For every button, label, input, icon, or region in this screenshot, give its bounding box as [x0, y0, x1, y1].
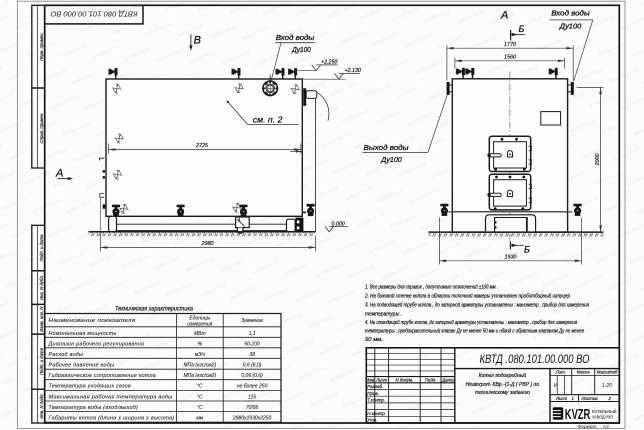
svg-text:Листов: Листов — [581, 396, 599, 401]
svg-text:Дата: Дата — [441, 377, 454, 382]
svg-text:Масштаб: Масштаб — [597, 370, 618, 375]
svg-text:2980х1930х2250: 2980х1930х2250 — [232, 415, 272, 421]
svg-text:KVZR: KVZR — [565, 407, 591, 423]
svg-text:А: А — [500, 10, 508, 22]
svg-text:0.000: 0.000 — [332, 221, 345, 227]
svg-text:+2.130: +2.130 — [345, 68, 361, 74]
svg-text:В: В — [194, 35, 201, 47]
svg-text:2. На боковой стенке котла в: 2. На боковой стенке котла в области топ… — [364, 293, 570, 300]
svg-text:Heaterport- КВр -(1-Д ( РВР ): Heaterport- КВр -(1-Д ( РВР ) по — [466, 382, 540, 388]
svg-text:температуры , предохранительны: температуры , предохранительный клапан Д… — [365, 328, 584, 335]
svg-text:Габариты котла (длина х ширина: Габариты котла (длина х ширина х высота) — [49, 415, 175, 421]
svg-text:Т.контр.: Т.контр. — [367, 398, 385, 403]
svg-text:2: 2 — [608, 396, 612, 401]
svg-text:Подп. и дата: Подп. и дата — [39, 348, 44, 376]
svg-text:Ду100: Ду100 — [380, 157, 402, 164]
svg-text:Формат: Формат — [578, 424, 597, 430]
svg-text:МПа (кгс/см2): МПа (кгс/см2) — [183, 373, 216, 379]
svg-text:N докум.: N докум. — [396, 377, 414, 382]
svg-text:И: И — [554, 383, 558, 389]
svg-text:Расход воды: Расход воды — [49, 352, 84, 358]
svg-text:А3: А3 — [602, 424, 609, 430]
svg-text:А: А — [55, 167, 63, 179]
svg-text:Подп.: Подп. — [425, 377, 437, 382]
svg-text:Номинальная мощность: Номинальная мощность — [49, 331, 117, 337]
svg-text:Утв.: Утв. — [367, 417, 377, 422]
svg-text:см. п. 2: см. п. 2 — [253, 115, 283, 125]
svg-text:техническому заданию: техническому заданию — [475, 390, 530, 396]
svg-text:Вход воды: Вход воды — [276, 33, 315, 42]
svg-text:Лит.: Лит. — [555, 370, 566, 375]
svg-text:1. Все размеры для справок ,: 1. Все размеры для справок , допустимые … — [365, 284, 498, 291]
svg-text:м3/ч: м3/ч — [195, 352, 206, 358]
svg-text:МПа (кгс/см2): МПа (кгс/см2) — [183, 362, 216, 368]
svg-text:температуры .: температуры . — [365, 312, 402, 318]
svg-text:1770: 1770 — [504, 42, 516, 48]
svg-text:Температура воды (вход/выход): Температура воды (вход/выход) — [49, 405, 139, 411]
svg-text:не более 250: не более 250 — [237, 384, 268, 390]
svg-text:Справ. примен.: Справ. примен. — [39, 113, 44, 144]
svg-text:50 мм.: 50 мм. — [365, 337, 383, 343]
svg-text:Пров.: Пров. — [367, 391, 379, 396]
svg-text:50-100: 50-100 — [244, 341, 260, 347]
svg-text:3. На подводящей трубе котла: 3. На подводящей трубе котла , до запорн… — [365, 302, 589, 309]
svg-text:ЗАВОД РЭП: ЗАВОД РЭП — [592, 414, 613, 419]
svg-text:°С: °С — [197, 394, 203, 400]
svg-text:Взам. инв. N: Взам. инв. N — [39, 306, 44, 332]
svg-text:1930: 1930 — [505, 254, 517, 260]
svg-text:Вход воды: Вход воды — [551, 8, 590, 17]
svg-text:КВТД .080.101.00.000 ВО: КВТД .080.101.00.000 ВО — [480, 354, 590, 366]
svg-text:Котел водогрейный: Котел водогрейный — [479, 372, 527, 379]
svg-text:Н.контр.: Н.контр. — [367, 411, 386, 416]
svg-text:Изм.: Изм. — [366, 377, 375, 382]
svg-text:Значение: Значение — [241, 318, 263, 324]
svg-text:Максимальная рабочая температу: Максимальная рабочая температура воды — [49, 394, 173, 400]
svg-text:°С: °С — [197, 405, 203, 411]
svg-text:мм: мм — [196, 415, 203, 421]
svg-text:Подп. и дата: Подп. и дата — [39, 234, 44, 262]
svg-text:2725: 2725 — [195, 143, 209, 149]
svg-text:Масса: Масса — [577, 370, 591, 375]
svg-text:Лист: Лист — [555, 396, 568, 401]
svg-text:Разраб.: Разраб. — [367, 384, 383, 389]
svg-text:Инв. N дубл.: Инв. N дубл. — [39, 275, 44, 300]
svg-text:Техническая характеристика: Техническая характеристика — [115, 307, 194, 313]
svg-text:Рабочее давление воды: Рабочее давление воды — [49, 362, 115, 368]
svg-text:Перв. примен.: Перв. примен. — [39, 32, 44, 61]
svg-text:Ду100: Ду100 — [559, 23, 582, 30]
svg-text:1:20: 1:20 — [602, 383, 613, 389]
svg-text:38: 38 — [249, 352, 255, 358]
svg-text:0,6 (6,0): 0,6 (6,0) — [243, 362, 262, 368]
svg-text:0,06 (0,6): 0,06 (0,6) — [241, 373, 263, 379]
svg-text:Выход воды: Выход воды — [364, 143, 410, 152]
svg-text:Б: Б — [519, 24, 525, 34]
svg-text:2980: 2980 — [201, 241, 214, 247]
svg-text:1,1: 1,1 — [249, 331, 256, 337]
svg-text:КВТД.080.101.00.000 ВО: КВТД.080.101.00.000 ВО — [50, 9, 137, 18]
svg-text:4. На отводящей трубе котла ,: 4. На отводящей трубе котла ,до запорной… — [365, 319, 577, 326]
svg-text:Лист: Лист — [375, 377, 388, 382]
svg-text:Диапазон рабочего регулировани: Диапазон рабочего регулирования — [48, 341, 145, 347]
svg-text:МВт: МВт — [194, 331, 206, 337]
svg-text:КОТЕЛЬНЫЙ: КОТЕЛЬНЫЙ — [592, 409, 617, 414]
svg-text:°С: °С — [197, 384, 203, 390]
svg-text:Ду100: Ду100 — [291, 47, 311, 54]
svg-text:Б: Б — [524, 244, 530, 254]
svg-text:1560: 1560 — [504, 54, 516, 60]
svg-text:%: % — [198, 341, 203, 347]
svg-text:Температура уходящих газов: Температура уходящих газов — [49, 384, 131, 390]
svg-text:115: 115 — [248, 394, 256, 400]
svg-text:70/95: 70/95 — [246, 405, 259, 411]
svg-text:Наименование показателя: Наименование показателя — [49, 318, 136, 324]
svg-text:измерения: измерения — [187, 321, 212, 327]
svg-text:+2.250: +2.250 — [321, 60, 337, 66]
svg-text:2000: 2000 — [595, 154, 601, 167]
svg-text:Гидравлическое сопротивление к: Гидравлическое сопротивление котла — [49, 373, 157, 379]
svg-text:Инв. N подл.: Инв. N подл. — [39, 393, 44, 418]
